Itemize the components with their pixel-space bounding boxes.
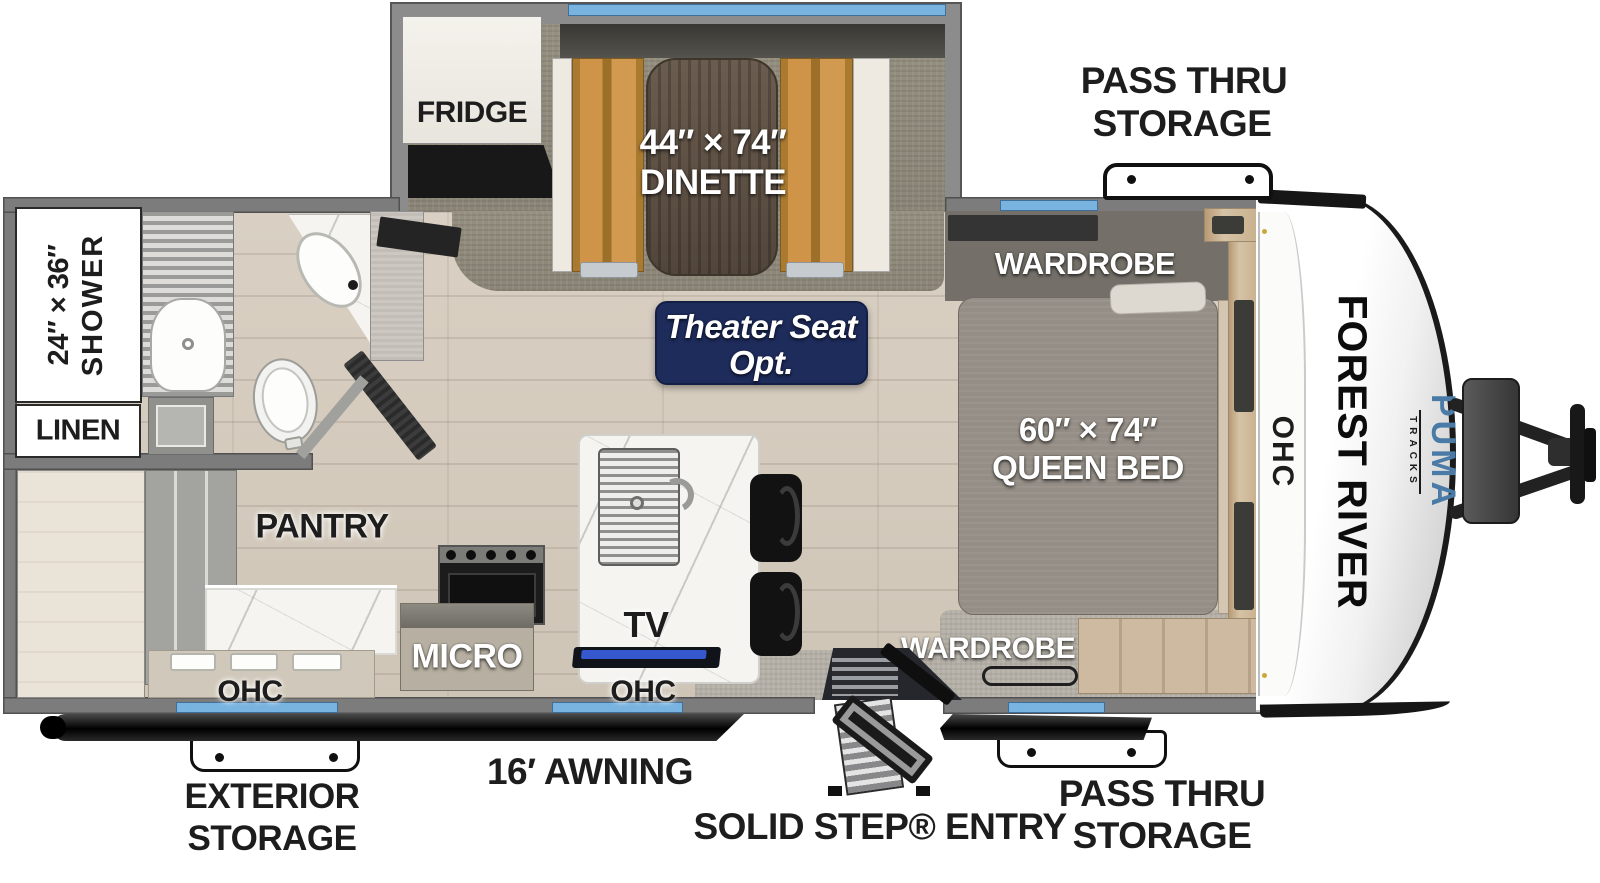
awning-bar-endcap bbox=[40, 716, 66, 739]
bath-drawer-face bbox=[156, 405, 206, 447]
shower-label: 24″ × 36″ SHOWER bbox=[42, 234, 110, 377]
step-foot bbox=[916, 786, 930, 796]
counter-flip-panel bbox=[230, 653, 278, 671]
bed-pillow bbox=[1110, 281, 1207, 314]
bed-frame-slot bbox=[1212, 216, 1244, 234]
counter-flip-panel bbox=[170, 653, 216, 671]
pass-thru-door-top bbox=[1103, 163, 1273, 200]
dinette-size-label: 44″ × 74″ bbox=[640, 123, 787, 163]
wardrobe-bottom-label: WARDROBE bbox=[901, 632, 1075, 666]
bedroom-top-window bbox=[1000, 200, 1098, 211]
pantry-label: PANTRY bbox=[256, 508, 389, 547]
bed-frame-slot bbox=[1234, 300, 1254, 412]
tongue-jack bbox=[1570, 404, 1585, 504]
awning-label: 16′ AWNING bbox=[487, 751, 693, 793]
wardrobe-handle bbox=[982, 666, 1078, 686]
dinette-endboard-left bbox=[552, 58, 572, 272]
tv-label: TV bbox=[623, 604, 668, 646]
linen-label: LINEN bbox=[36, 415, 121, 448]
bed-frame-slot bbox=[1234, 502, 1254, 610]
dinette-endboard-right bbox=[853, 58, 890, 272]
counter-flip-panel bbox=[292, 653, 342, 671]
bedroom-bottom-window bbox=[1008, 702, 1105, 713]
ohc-front-label: OHC bbox=[1265, 416, 1299, 489]
wardrobe-top-label: WARDROBE bbox=[995, 246, 1175, 282]
micro-label: MICRO bbox=[412, 638, 523, 677]
step-foot bbox=[828, 786, 842, 796]
queen-size-label: 60″ × 74″ bbox=[1019, 411, 1157, 449]
rear-storage-cabinet bbox=[17, 470, 145, 698]
dinette-bench-left bbox=[572, 58, 644, 272]
exterior-storage-door bbox=[190, 736, 360, 772]
dinette-bench-right bbox=[780, 58, 853, 272]
galley-counter-dark bbox=[408, 145, 562, 198]
ohc-screw bbox=[1262, 229, 1267, 234]
solid-step-label: SOLID STEP® ENTRY bbox=[693, 806, 1066, 848]
entry-step-treads bbox=[832, 658, 898, 696]
floorplan-canvas: FRIDGE 44″ × 74″ DINETTE 24″ × 36″ SHOWE… bbox=[0, 0, 1600, 883]
awning-bar-right bbox=[940, 714, 1152, 740]
island-chair bbox=[750, 474, 802, 562]
tv-unit bbox=[572, 647, 721, 668]
bath-faucet bbox=[348, 280, 358, 290]
queen-label: QUEEN BED bbox=[992, 449, 1184, 487]
pass-thru-bottom-label-1: PASS THRU bbox=[1059, 773, 1266, 815]
island-chair bbox=[750, 572, 802, 656]
pass-thru-top-label-1: PASS THRU bbox=[1081, 60, 1288, 102]
kitchen-counter bbox=[205, 588, 397, 655]
jack-foot bbox=[1584, 428, 1596, 482]
fridge-label: FRIDGE bbox=[417, 96, 527, 130]
slideout-window bbox=[568, 4, 946, 16]
pass-thru-top-label-2: STORAGE bbox=[1093, 103, 1272, 145]
forest-river-logo: FOREST RIVER bbox=[1329, 295, 1376, 610]
dinette-bench-base-right bbox=[786, 262, 844, 278]
wardrobe-bottom-cabinet bbox=[1078, 618, 1260, 694]
ohc-mid-label: OHC bbox=[610, 675, 675, 709]
awning-bar bbox=[52, 714, 744, 741]
ohc-left-label: OHC bbox=[217, 675, 282, 709]
dinette-bench-base-left bbox=[580, 262, 638, 278]
dinette-label: DINETTE bbox=[640, 163, 786, 203]
tracks-logo-text: TRACKS bbox=[1407, 410, 1421, 494]
bottom-wall-left bbox=[3, 697, 815, 714]
ohc-screw bbox=[1262, 673, 1267, 678]
exterior-storage-label-1: EXTERIOR bbox=[185, 777, 360, 817]
theater-line1: Theater Seat bbox=[665, 308, 857, 346]
theater-line2: Opt. bbox=[729, 344, 793, 382]
slideout-back-shadow bbox=[560, 24, 945, 58]
cap-trim-bottom bbox=[1260, 701, 1450, 717]
shower-drain bbox=[182, 338, 194, 350]
bedroom-ohc-valance bbox=[948, 215, 1098, 241]
exterior-storage-label-2: STORAGE bbox=[188, 819, 357, 859]
sink-drain bbox=[630, 496, 644, 510]
propane-cover bbox=[1462, 378, 1520, 524]
pass-thru-bottom-label-2: STORAGE bbox=[1073, 815, 1252, 857]
